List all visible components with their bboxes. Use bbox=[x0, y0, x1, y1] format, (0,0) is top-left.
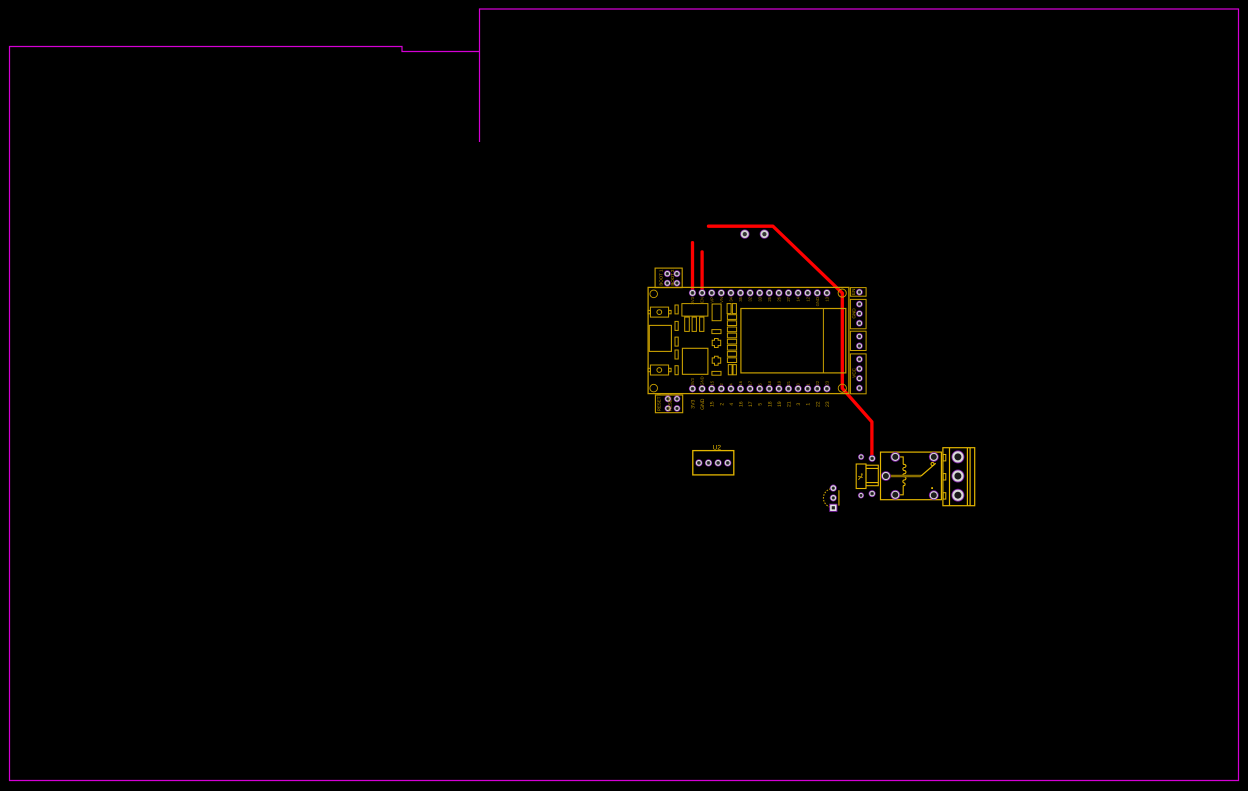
svg-text:32: 32 bbox=[748, 296, 753, 301]
svg-text:EN: EN bbox=[700, 297, 705, 303]
svg-text:3V3: 3V3 bbox=[691, 400, 697, 409]
svg-text:GND: GND bbox=[851, 308, 856, 319]
svg-text:16: 16 bbox=[739, 401, 745, 407]
svg-text:22: 22 bbox=[815, 401, 821, 407]
svg-text:BOOT 2: BOOT 2 bbox=[670, 269, 675, 286]
svg-text:1: 1 bbox=[806, 403, 812, 406]
svg-text:18: 18 bbox=[767, 380, 772, 385]
svg-text:13: 13 bbox=[825, 296, 830, 301]
svg-text:23: 23 bbox=[825, 380, 830, 385]
svg-text:3V3: 3V3 bbox=[690, 377, 695, 385]
svg-text:U2: U2 bbox=[713, 444, 722, 451]
svg-text:RESET 1: RESET 1 bbox=[656, 392, 661, 411]
svg-text:VCC: VCC bbox=[851, 367, 856, 377]
svg-text:VP: VP bbox=[709, 297, 714, 303]
svg-text:EN: EN bbox=[851, 289, 856, 295]
svg-text:21: 21 bbox=[786, 380, 791, 385]
svg-text:35: 35 bbox=[738, 296, 743, 301]
svg-text:GND: GND bbox=[700, 376, 705, 385]
svg-text:16: 16 bbox=[738, 380, 743, 385]
svg-text:2: 2 bbox=[719, 403, 725, 406]
svg-text:GND: GND bbox=[815, 297, 820, 306]
svg-text:25: 25 bbox=[767, 296, 772, 301]
svg-text:17: 17 bbox=[748, 401, 754, 407]
svg-text:15: 15 bbox=[709, 380, 714, 385]
svg-text:12: 12 bbox=[805, 296, 810, 301]
svg-text:19: 19 bbox=[777, 401, 783, 407]
svg-text:18: 18 bbox=[767, 401, 773, 407]
svg-text:BOOT 1: BOOT 1 bbox=[659, 269, 664, 286]
svg-text:21: 21 bbox=[787, 401, 793, 407]
svg-text:14: 14 bbox=[796, 296, 801, 301]
svg-text:23: 23 bbox=[825, 401, 831, 407]
svg-text:15: 15 bbox=[710, 401, 716, 407]
svg-text:17: 17 bbox=[748, 380, 753, 385]
svg-text:GND: GND bbox=[700, 398, 706, 410]
svg-text:4: 4 bbox=[729, 403, 735, 406]
svg-text:33: 33 bbox=[757, 296, 762, 301]
svg-text:22: 22 bbox=[815, 380, 820, 385]
svg-text:3V3: 3V3 bbox=[690, 296, 695, 304]
svg-text:34: 34 bbox=[729, 296, 734, 301]
svg-text:26: 26 bbox=[777, 296, 782, 301]
svg-text:VN: VN bbox=[719, 297, 724, 303]
svg-text:27: 27 bbox=[786, 296, 791, 301]
svg-text:3: 3 bbox=[796, 403, 802, 406]
svg-text:5: 5 bbox=[758, 403, 764, 406]
svg-text:19: 19 bbox=[777, 380, 782, 385]
svg-text:RESET 2: RESET 2 bbox=[668, 392, 673, 411]
